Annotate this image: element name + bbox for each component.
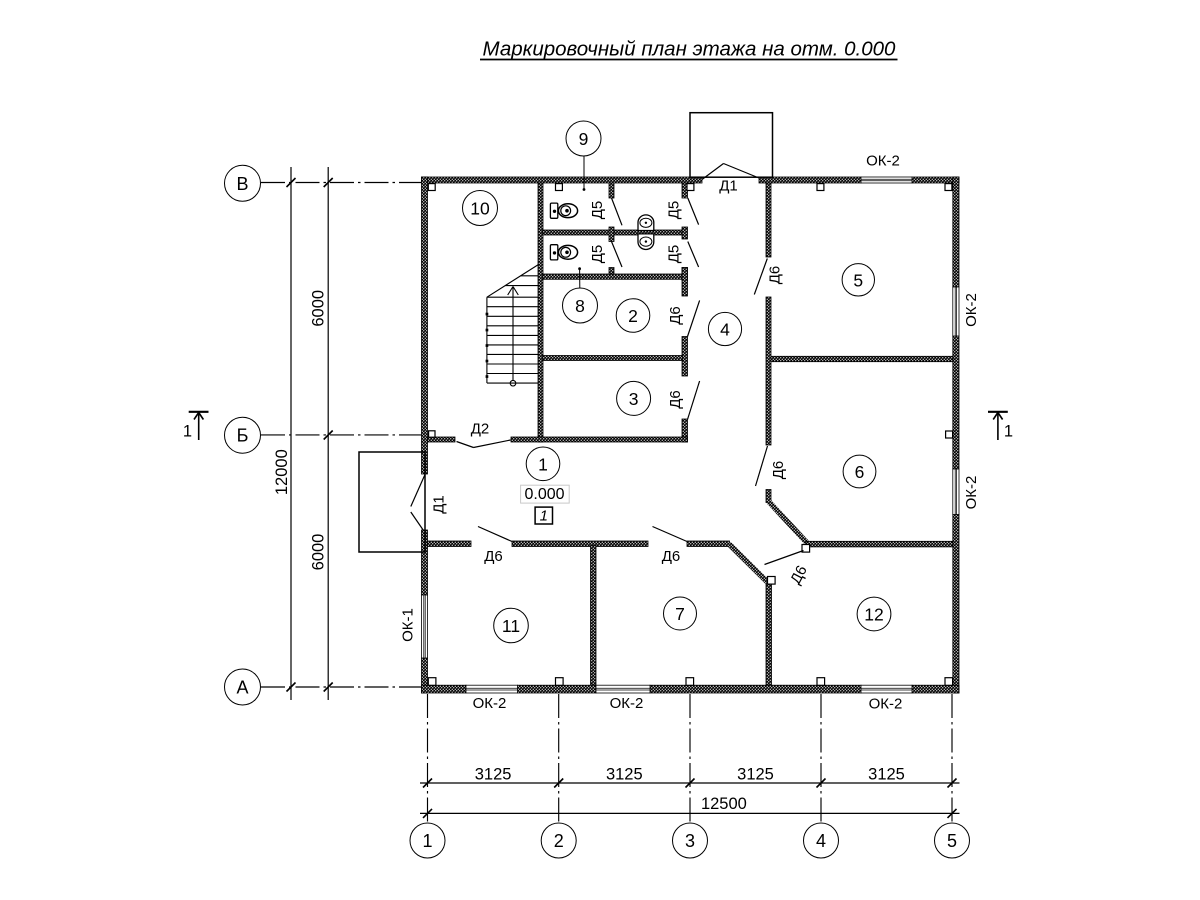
svg-text:4: 4 <box>816 831 826 851</box>
svg-text:7: 7 <box>675 604 685 624</box>
svg-text:10: 10 <box>470 199 490 219</box>
svg-text:1: 1 <box>183 423 192 441</box>
svg-text:ОК-2: ОК-2 <box>869 695 903 712</box>
svg-text:Д6: Д6 <box>770 461 787 480</box>
svg-text:Д1: Д1 <box>719 178 738 195</box>
svg-text:6000: 6000 <box>310 534 328 571</box>
svg-text:11: 11 <box>502 616 520 636</box>
svg-text:Д6: Д6 <box>767 266 784 285</box>
svg-text:Д5: Д5 <box>589 245 606 264</box>
svg-text:ОК-2: ОК-2 <box>473 695 507 712</box>
svg-text:12500: 12500 <box>701 795 747 813</box>
svg-text:6: 6 <box>855 462 865 482</box>
svg-text:ОК-2: ОК-2 <box>866 153 900 170</box>
svg-text:ОК-2: ОК-2 <box>963 293 980 327</box>
svg-text:8: 8 <box>575 296 585 316</box>
svg-text:1: 1 <box>540 508 548 525</box>
svg-text:1: 1 <box>1004 423 1013 441</box>
svg-text:3125: 3125 <box>868 766 905 784</box>
svg-text:В: В <box>236 174 248 194</box>
svg-text:9: 9 <box>579 129 589 149</box>
svg-text:А: А <box>236 678 248 698</box>
svg-text:Маркировочный план этажа на от: Маркировочный план этажа на отм. 0.000 <box>483 37 897 60</box>
svg-text:2: 2 <box>554 831 564 851</box>
svg-text:Д6: Д6 <box>662 548 681 565</box>
svg-text:ОК-1: ОК-1 <box>400 608 417 642</box>
svg-text:5: 5 <box>947 831 957 851</box>
svg-text:6000: 6000 <box>310 290 328 327</box>
svg-text:3: 3 <box>629 389 639 409</box>
svg-text:4: 4 <box>720 320 730 340</box>
svg-text:Д5: Д5 <box>666 201 683 220</box>
svg-text:Д6: Д6 <box>667 306 684 325</box>
svg-text:1: 1 <box>422 831 432 851</box>
svg-text:Д6: Д6 <box>484 548 503 565</box>
svg-text:1: 1 <box>538 454 548 474</box>
svg-text:12: 12 <box>864 605 883 625</box>
svg-text:2: 2 <box>628 306 638 326</box>
svg-text:Д2: Д2 <box>471 421 490 438</box>
svg-text:ОК-2: ОК-2 <box>963 476 980 510</box>
svg-text:Б: Б <box>237 426 249 446</box>
svg-text:3125: 3125 <box>606 766 643 784</box>
svg-text:3: 3 <box>685 831 695 851</box>
svg-text:3125: 3125 <box>475 766 512 784</box>
svg-text:5: 5 <box>853 270 863 290</box>
svg-text:Д6: Д6 <box>667 390 684 409</box>
svg-text:0.000: 0.000 <box>524 486 564 503</box>
svg-text:Д1: Д1 <box>431 495 448 514</box>
svg-text:12000: 12000 <box>273 449 291 495</box>
svg-text:Д5: Д5 <box>666 245 683 264</box>
svg-text:3125: 3125 <box>737 766 774 784</box>
svg-text:Д5: Д5 <box>589 201 606 220</box>
svg-text:ОК-2: ОК-2 <box>610 695 644 712</box>
